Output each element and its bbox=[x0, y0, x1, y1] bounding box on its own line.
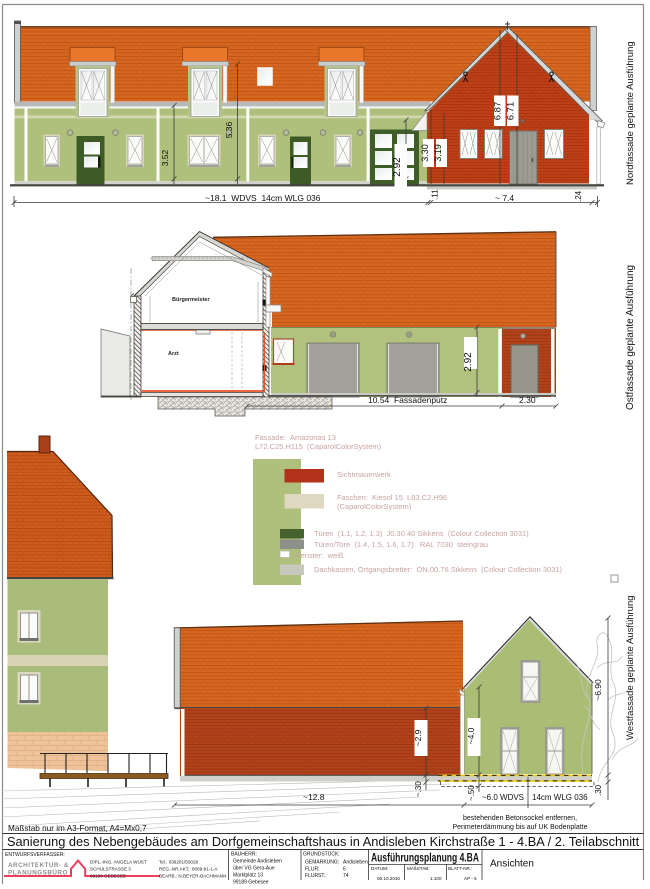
svg-text:~6.90: ~6.90 bbox=[593, 679, 603, 701]
svg-text:~2.9: ~2.9 bbox=[413, 729, 423, 746]
svg-text:2.30: 2.30 bbox=[519, 395, 536, 405]
svg-text:REG.-NR.AKT.: 0009-91-1-A: REG.-NR.AKT.: 0009-91-1-A bbox=[159, 867, 218, 872]
svg-text:99189 Gebesee: 99189 Gebesee bbox=[233, 880, 269, 885]
svg-text:GEMARKUNG:: GEMARKUNG: bbox=[305, 860, 339, 866]
svg-text:10.54 Fassadenputz: 10.54 Fassadenputz bbox=[368, 395, 447, 405]
svg-text:Ansichten: Ansichten bbox=[490, 859, 534, 870]
svg-text:Türen (1.1, 1.2, 1.3) J0.30.: Türen (1.1, 1.2, 1.3) J0.30.40 Sikkens (… bbox=[314, 529, 529, 538]
svg-text:DIPL.-ING. ANGELA WUST: DIPL.-ING. ANGELA WUST bbox=[90, 860, 147, 865]
svg-text:GRUNDSTÜCK:: GRUNDSTÜCK: bbox=[303, 851, 340, 858]
svg-text:2.92: 2.92 bbox=[392, 157, 403, 177]
svg-text:.11: .11 bbox=[431, 189, 440, 200]
svg-text:3.19: 3.19 bbox=[433, 144, 443, 162]
svg-text:(CaparolColorSystem): (CaparolColorSystem) bbox=[337, 502, 412, 511]
svg-text:74: 74 bbox=[343, 873, 349, 879]
svg-text:Tel.: 036201/50028: Tel.: 036201/50028 bbox=[159, 860, 199, 865]
svg-text:Ostfassade geplante Ausführung: Ostfassade geplante Ausführung bbox=[625, 265, 636, 410]
svg-text:6: 6 bbox=[343, 867, 346, 873]
svg-text:Westfassade geplante Ausführun: Westfassade geplante Ausführung bbox=[625, 595, 636, 740]
svg-text:Türen/Tore (1.4, 1.5, 1.6, 1.: Türen/Tore (1.4, 1.5, 1.6, 1.7) RAL 7030… bbox=[314, 540, 488, 549]
svg-text:~.30: ~.30 bbox=[414, 781, 423, 797]
svg-text:Faschen: Kiesol 15 L83.C2.H9: Faschen: Kiesol 15 L83.C2.H96 bbox=[337, 493, 447, 502]
svg-text:AP - 5: AP - 5 bbox=[464, 876, 477, 881]
svg-text:~.50: ~.50 bbox=[467, 785, 476, 801]
svg-text:Andisleben: Andisleben bbox=[343, 860, 368, 866]
svg-text:~12.8: ~12.8 bbox=[303, 792, 325, 802]
svg-text:Fenster: weiß: Fenster: weiß bbox=[296, 551, 344, 560]
svg-text:Bürgermeister: Bürgermeister bbox=[172, 297, 210, 303]
svg-text:Gemeinde Andisleben: Gemeinde Andisleben bbox=[233, 859, 282, 865]
svg-text:~ 7.4: ~ 7.4 bbox=[495, 193, 514, 203]
svg-text:14cm WLG 036: 14cm WLG 036 bbox=[532, 793, 588, 802]
svg-text:3.52: 3.52 bbox=[160, 149, 170, 166]
svg-text:99189 GEBESEE: 99189 GEBESEE bbox=[90, 874, 126, 879]
svg-text:~18.1 WDVS 14cm WLG 036: ~18.1 WDVS 14cm WLG 036 bbox=[205, 193, 321, 203]
svg-text:BEARB.: N.BEYER-BACHMANN: BEARB.: N.BEYER-BACHMANN bbox=[159, 874, 226, 879]
svg-text:SCHULSTRASSE 3: SCHULSTRASSE 3 bbox=[90, 867, 131, 872]
svg-text:BAUHERR:: BAUHERR: bbox=[231, 852, 257, 858]
svg-text:FLURST.:: FLURST.: bbox=[305, 873, 327, 879]
svg-text:DATUM:: DATUM: bbox=[371, 866, 388, 871]
svg-text:FLUR:: FLUR: bbox=[305, 867, 319, 873]
svg-text:L72.C25.H115 (CaparolColorSys: L72.C25.H115 (CaparolColorSystem) bbox=[255, 442, 382, 451]
svg-text:Sichtmauerwerk: Sichtmauerwerk bbox=[337, 470, 391, 479]
svg-text:Arzt: Arzt bbox=[168, 351, 179, 357]
svg-text:2.92: 2.92 bbox=[463, 352, 474, 372]
svg-text:06.10.2016: 06.10.2016 bbox=[377, 876, 400, 881]
svg-text:Ausführungsplanung 4.BA: Ausführungsplanung 4.BA bbox=[371, 853, 479, 865]
svg-text:Sanierung des Nebengebäudes am: Sanierung des Nebengebäudes am Dorfgemei… bbox=[7, 834, 640, 849]
svg-text:Nordfassade geplante Ausführun: Nordfassade geplante Ausführung bbox=[625, 41, 636, 185]
svg-text:~6.0 WDVS: ~6.0 WDVS bbox=[482, 793, 524, 802]
svg-text:6.87: 6.87 bbox=[493, 102, 504, 121]
svg-text:Maßstab nur im A3-Format, A4=M: Maßstab nur im A3-Format, A4=Mx0,7 bbox=[8, 824, 147, 833]
svg-text:bestehenden Betonsockel entfer: bestehenden Betonsockel entfernen, bbox=[463, 815, 577, 822]
svg-text:über VG Gera-Aue: über VG Gera-Aue bbox=[233, 866, 275, 872]
svg-text:5.36: 5.36 bbox=[224, 121, 234, 138]
svg-text:.24: .24 bbox=[574, 190, 583, 202]
svg-text:.30: .30 bbox=[594, 784, 603, 796]
svg-text:Marktplatz 13: Marktplatz 13 bbox=[233, 873, 263, 879]
svg-text:6.71: 6.71 bbox=[506, 102, 517, 121]
svg-text:1:100: 1:100 bbox=[430, 876, 442, 881]
svg-text:Dachkasten, Ortgangsbretter:: Dachkasten, Ortgangsbretter: ON.00.76 Si… bbox=[314, 565, 563, 574]
svg-text:ARCHITEKTUR- &: ARCHITEKTUR- & bbox=[8, 862, 69, 869]
svg-text:Fassade: Amazonas 13: Fassade: Amazonas 13 bbox=[255, 433, 336, 442]
svg-text:Perimeterdämmung bis auf UK Bo: Perimeterdämmung bis auf UK Bodenplatte bbox=[452, 824, 587, 831]
svg-text:3.30: 3.30 bbox=[420, 144, 430, 162]
svg-text:ENTWURFSVERFASSER:: ENTWURFSVERFASSER: bbox=[5, 852, 65, 858]
svg-text:~4.0: ~4.0 bbox=[466, 727, 476, 744]
svg-text:MAßSTAB:: MAßSTAB: bbox=[407, 866, 430, 871]
svg-text:BLATT-NR.:: BLATT-NR.: bbox=[448, 866, 472, 871]
